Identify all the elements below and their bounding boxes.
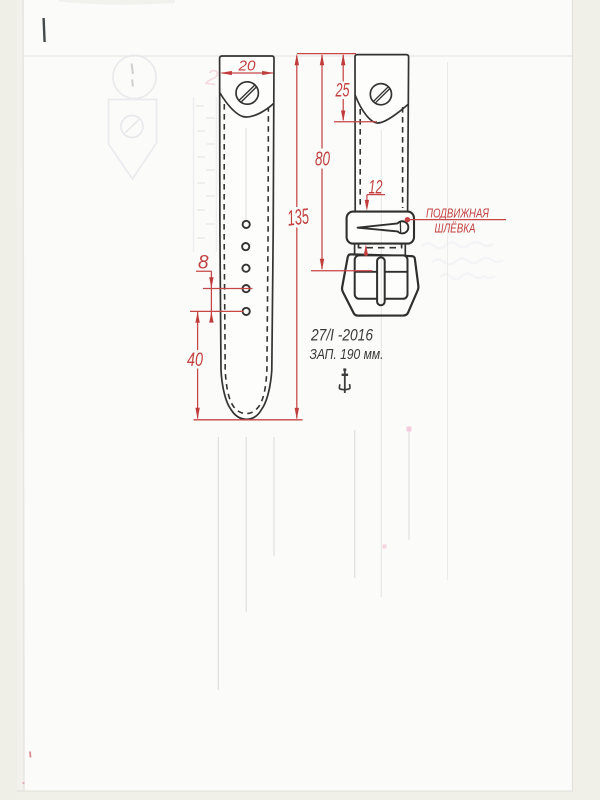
svg-text:80: 80: [315, 149, 330, 171]
svg-text:40: 40: [187, 350, 203, 371]
svg-text:12: 12: [369, 178, 383, 199]
svg-text:25: 25: [335, 81, 350, 102]
svg-text:135: 135: [286, 203, 311, 230]
svg-text:27/I -2016: 27/I -2016: [310, 326, 373, 345]
svg-text:ШЛЁВКА: ШЛЁВКА: [435, 222, 476, 236]
svg-text:ПОДВИЖНАЯ: ПОДВИЖНАЯ: [426, 207, 489, 221]
svg-text:20: 20: [237, 58, 256, 75]
svg-text:8: 8: [198, 253, 209, 274]
svg-text:ЗАП. 190 мм.: ЗАП. 190 мм.: [310, 346, 384, 363]
